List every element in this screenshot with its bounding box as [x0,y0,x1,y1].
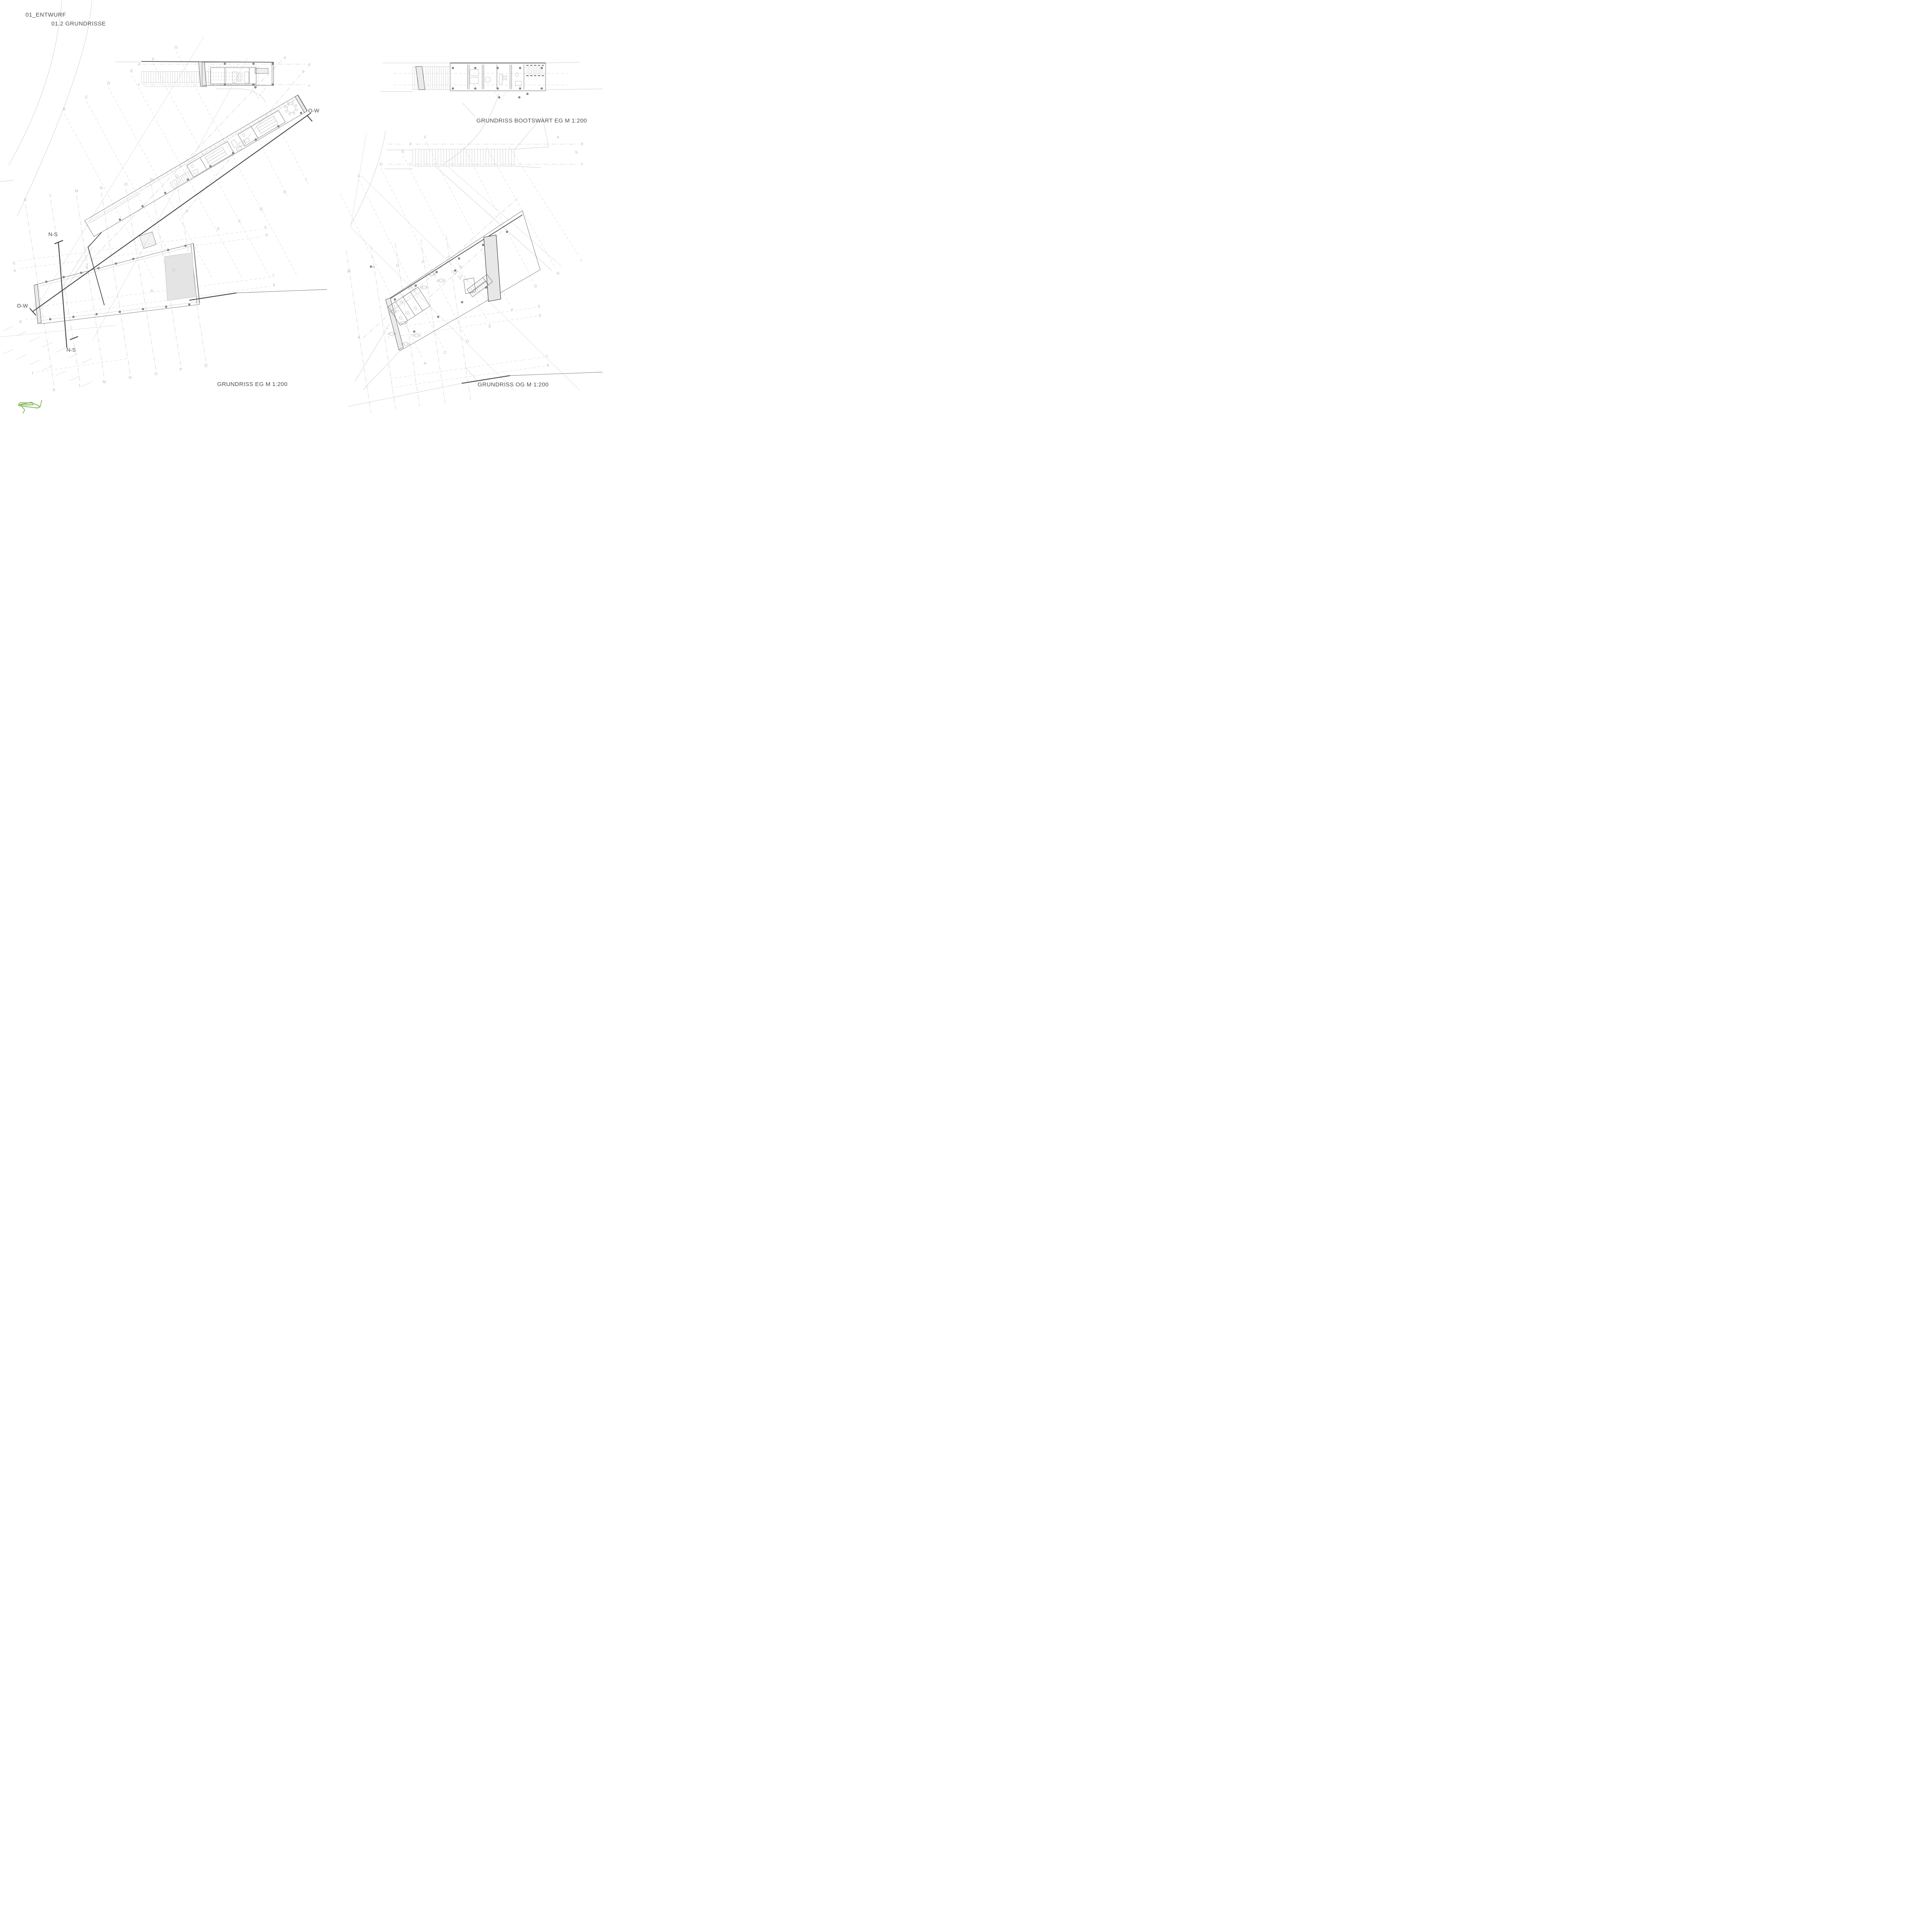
column-dot [541,88,543,90]
grid-label: 7 [272,274,274,278]
concept-sketch-stroke [37,400,42,408]
eg-shore-building [141,61,274,103]
grid-label: K [24,198,27,202]
eg-upper-wing-interior [85,95,308,237]
column-dot [458,258,460,260]
column-dot [255,138,257,141]
column-dot [527,93,529,95]
column-dot [413,331,415,333]
bootswart-plan [381,62,602,163]
column-dot [98,267,100,269]
grid-label: M [347,269,351,274]
grid-label: 6 [265,233,268,238]
column-dot [46,281,48,283]
grid-label: d [409,142,412,146]
column-dot [461,301,463,303]
grid-label: D [379,162,383,167]
caption-grundriss-eg: GRUNDRISS EG M 1:200 [217,381,287,388]
grid-label: D [107,81,110,86]
grid-label: c [138,82,140,87]
grid-label: M [75,189,78,194]
og-kitchen [399,283,415,297]
column-dot [142,308,144,310]
column-dot [485,287,487,289]
grid-label: C [444,350,447,355]
section-marker-label: O-W [308,107,320,114]
floor-plan-drawing: GFEDCAIHGFEadbcdcKLMNOPQKLMNOPQ56785678f… [0,0,602,426]
column-dot [277,125,279,128]
grid-label: 8 [19,320,22,324]
grid-label: A [63,107,65,112]
column-dot [253,63,255,65]
grid-label: Q [447,256,451,260]
grid-label: I [581,259,582,263]
grid-label: 7 [546,354,548,359]
grid-label: Q [175,174,178,179]
grid-label: d [138,62,140,67]
grid-label: 5 [13,261,15,266]
sheet-subtitle: 01.2 GRUNDRISSE [51,20,106,27]
column-dot [49,318,51,320]
column-dot [519,88,521,90]
og-plan [348,117,602,407]
grid-label: b [575,150,578,155]
column-dot [224,63,226,65]
grid-label: G [175,45,178,50]
column-dot [415,285,417,287]
grid-label: F [511,308,514,313]
column-dot [497,88,499,90]
grid-label: 6 [14,269,16,273]
column-dot [73,316,75,318]
column-dot [115,263,117,265]
grid-label: O [155,372,158,376]
column-dot [165,306,167,308]
grid-label: 8 [273,283,275,287]
grid-label: d [308,63,310,67]
column-dot [133,258,134,260]
column-dot [63,276,65,278]
column-dot [80,272,82,274]
section-marker-label: O-W [17,303,29,309]
grid-label: c [409,162,411,167]
caption-grundriss-og: GRUNDRISS OG M 1:200 [478,381,549,388]
grid-label: L [49,193,52,198]
concept-sketch [18,400,42,413]
column-dot [189,304,190,306]
grid-label: E [401,150,404,154]
grid-label: N [372,265,375,270]
column-dot [370,266,372,268]
grid-og [340,131,580,413]
column-dot [519,67,521,69]
grid-label: D [466,339,469,344]
grid-label: A [150,289,153,293]
grid-label: H [283,190,286,195]
site-context [0,1,327,386]
column-dot [454,270,456,272]
column-dot [506,231,508,233]
grid-label: C [172,268,175,272]
caption-grundriss-bootswart: GRUNDRISS BOOTSWART EG M 1:200 [476,117,587,124]
column-dot [253,84,255,86]
grid-label: 6 [539,313,541,318]
column-dot [185,245,187,247]
column-dot [474,88,476,90]
grid-label: K [53,388,55,393]
grid-label: E [488,324,491,329]
sheet-title: 01_ENTWURF [26,12,66,18]
grid-label: 5 [264,226,267,230]
grid-label: 8 [547,363,549,368]
drawing-sheet: GFEDCAIHGFEadbcdcKLMNOPQKLMNOPQ56785678f… [0,0,602,426]
column-dot [497,67,499,69]
column-dot [436,271,438,273]
column-dot [272,84,274,86]
section-marker-label: N-S [66,347,76,353]
column-dot [394,299,396,301]
grid-label: P [150,178,153,182]
grid-label: P [179,367,182,372]
grid-label: G [260,207,263,212]
column-dot [300,112,302,114]
grid-label: N [129,376,132,380]
column-dot [498,97,500,99]
column-dot [272,63,274,65]
column-dot [255,87,257,88]
grid-label: F [424,135,427,140]
grid-label: O [124,182,128,187]
grid-label: N [100,186,103,191]
column-dot [96,313,98,315]
grid-label: H [556,271,560,276]
grid-label: L [79,383,81,388]
column-dot [119,311,121,313]
grid-label: b [302,70,304,74]
grid-label: f [32,371,33,376]
grid-label: M [103,380,106,384]
column-dot [519,97,520,99]
grid-label: G [534,284,537,289]
grid-label: c [581,162,583,167]
grid-label: a [86,265,88,270]
column-dot [164,192,166,194]
grid-label: F [152,57,155,62]
eg-outdoor-stair [139,232,156,248]
column-dot [437,316,439,318]
grid-label: 5 [538,304,540,309]
column-dot [541,67,543,69]
column-dot [167,249,169,251]
grid-label: P [422,260,424,265]
column-dot [452,67,454,69]
column-dot [119,218,121,221]
grid-label: C [357,174,361,179]
grid-label: c [308,83,310,88]
column-dot [141,205,144,208]
column-dot [187,179,189,181]
grid-label: E [217,227,219,231]
grid-label: A [423,361,426,366]
grid-eg [19,52,309,386]
column-dot [474,67,476,69]
grid-label: I [306,178,307,182]
column-dot [482,244,484,246]
grid-label: Q [204,363,207,368]
column-dot [224,84,226,86]
grid-label: a [284,55,286,60]
grid-label: C [85,95,88,100]
grid-label: b [186,209,188,214]
grid-label: a [358,335,360,340]
section-marker-label: N-S [48,231,58,237]
column-dot [209,165,211,167]
grid-label: F [238,219,241,224]
grid-label: b [459,265,462,269]
section-lines [30,113,312,348]
column-dot [452,88,454,90]
grid-label: O [396,264,399,268]
grid-label: a [557,135,559,139]
grid-label: d [581,142,583,146]
grid-label: E [130,69,133,73]
